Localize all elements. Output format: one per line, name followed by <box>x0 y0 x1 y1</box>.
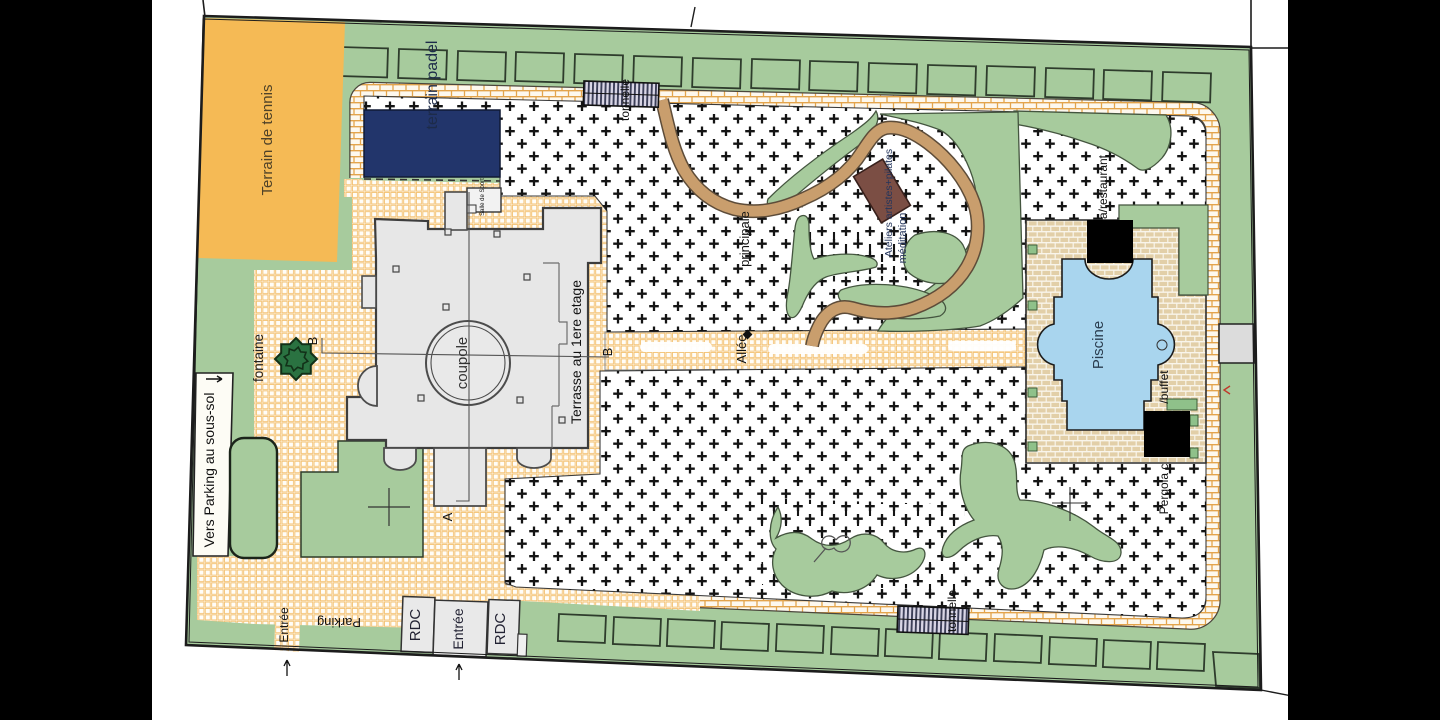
svg-text:Ateliers artistes+pilates: Ateliers artistes+pilates <box>883 149 895 257</box>
svg-text:RDC: RDC <box>407 609 424 642</box>
svg-text:tonnelle: tonnelle <box>945 590 959 632</box>
svg-text:coupole: coupole <box>454 337 471 390</box>
svg-text:Entrée: Entrée <box>450 608 466 649</box>
svg-text:Salle de Sport: Salle de Sport <box>480 178 486 216</box>
svg-text:principale: principale <box>737 211 752 267</box>
svg-text:Pergola c: Pergola c <box>1157 464 1171 515</box>
svg-text:/buffet: /buffet <box>1157 370 1171 404</box>
svg-text:B: B <box>600 348 615 357</box>
svg-text:a/restaurant: a/restaurant <box>1096 154 1110 219</box>
svg-text:Parking: Parking <box>317 615 361 630</box>
svg-text:Vers Parking au sous-sol: Vers Parking au sous-sol <box>201 393 217 548</box>
svg-text:Terrasse au 1ere etage: Terrasse au 1ere etage <box>568 280 584 424</box>
svg-text:fontaine: fontaine <box>251 334 266 382</box>
svg-text:Allée: Allée <box>734 335 749 364</box>
svg-text:Terrain de tennis: Terrain de tennis <box>259 85 276 196</box>
svg-text:terrain padel: terrain padel <box>424 41 441 130</box>
svg-text:Entrée: Entrée <box>277 607 291 643</box>
svg-text:A: A <box>440 512 455 521</box>
svg-text:méditation: méditation <box>897 213 909 264</box>
svg-text:RDC: RDC <box>492 613 509 646</box>
svg-text:tonnelle: tonnelle <box>618 79 632 121</box>
svg-text:Piscine: Piscine <box>1090 321 1107 369</box>
